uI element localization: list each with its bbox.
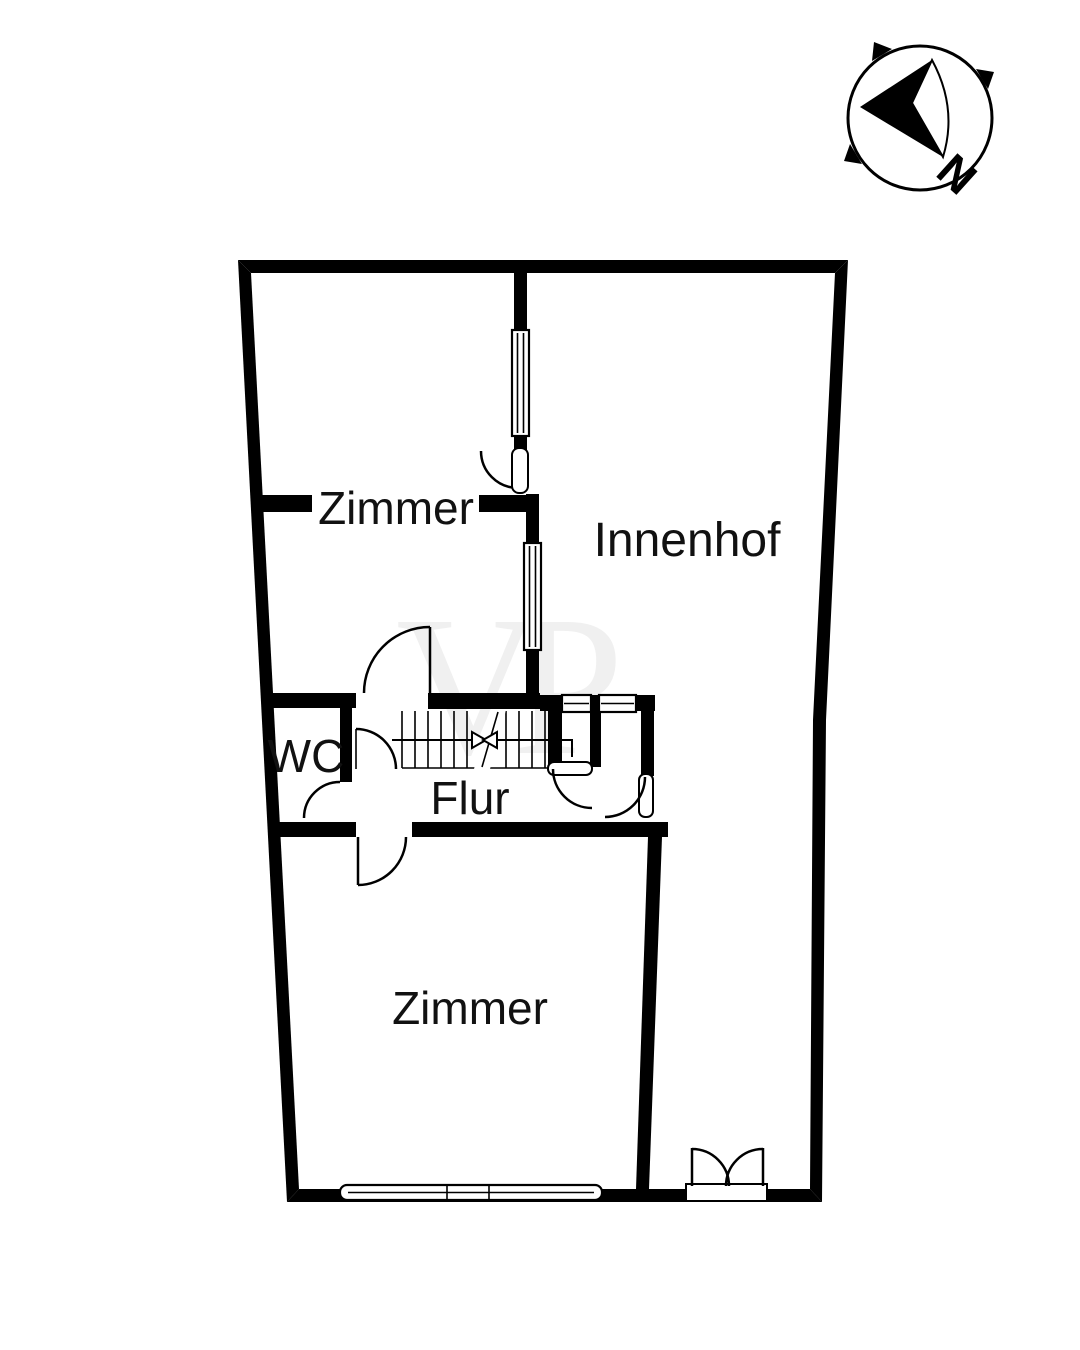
- floor-plan-page: VP: [0, 0, 1080, 1350]
- wall-landing-divider: [590, 709, 601, 767]
- north-arrow: N: [844, 42, 994, 204]
- wall-flur-bottom-right: [412, 822, 668, 837]
- wall-divider-upper: [514, 272, 527, 332]
- floor-plan-drawing: VP: [0, 0, 1080, 1350]
- door-stairfoot-arc: [356, 729, 396, 769]
- wall-zimmer-bottom-right: [636, 837, 662, 1189]
- wall-divider-lower-b: [526, 649, 539, 695]
- door-french-left-arc: [692, 1149, 729, 1186]
- door-landing-threshold: [548, 762, 592, 775]
- door-wc-arc: [304, 782, 340, 818]
- door-french-right-arc: [726, 1149, 763, 1186]
- room-label-zimmer-top: Zimmer: [318, 482, 474, 534]
- wall-divider-lower-a: [526, 494, 539, 546]
- room-label-wc: WC: [268, 730, 345, 782]
- wall-right: [810, 260, 848, 1202]
- room-label-flur: Flur: [430, 772, 509, 824]
- door-divider-leaf: [512, 448, 528, 493]
- window-divider-upper: [512, 330, 529, 436]
- window-divider-lower: [524, 543, 541, 650]
- wall-stairblock-top-left: [271, 693, 356, 708]
- wall-flur-bottom-left: [276, 822, 356, 837]
- door-french-threshold: [686, 1184, 767, 1201]
- room-label-innenhof: Innenhof: [594, 514, 782, 567]
- room-label-zimmer-bottom: Zimmer: [392, 982, 548, 1034]
- door-zimmer-bottom-arc: [358, 837, 406, 885]
- wall-top: [238, 260, 848, 273]
- wall-stairblock-right: [641, 709, 654, 776]
- wall-stairblock-top-landing: [540, 695, 655, 711]
- wall-stairblock-top-mid: [428, 693, 540, 709]
